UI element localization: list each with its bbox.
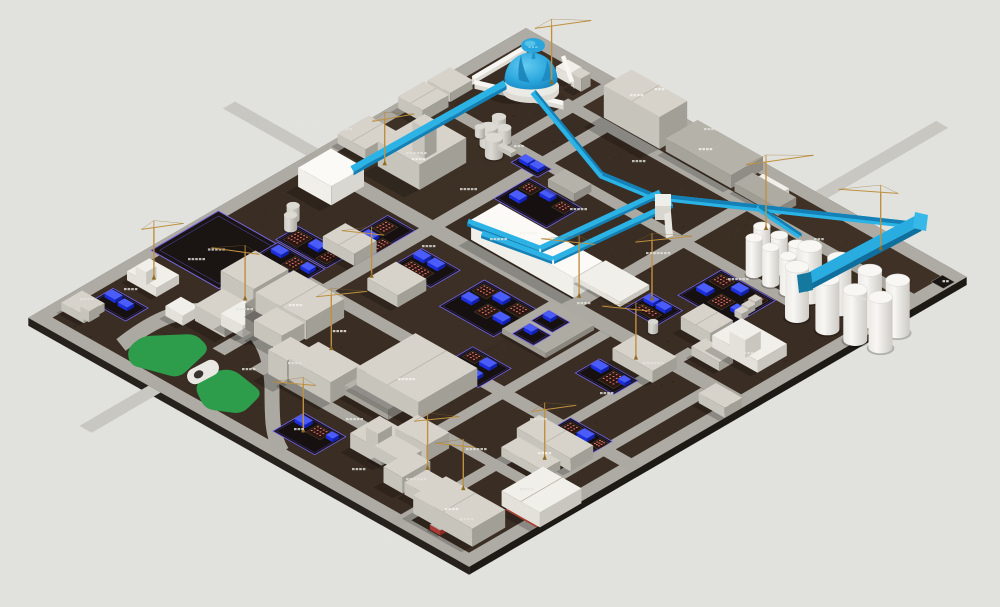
svg-text:¤ ¤ ¤: ¤ ¤ ¤ bbox=[529, 45, 538, 50]
